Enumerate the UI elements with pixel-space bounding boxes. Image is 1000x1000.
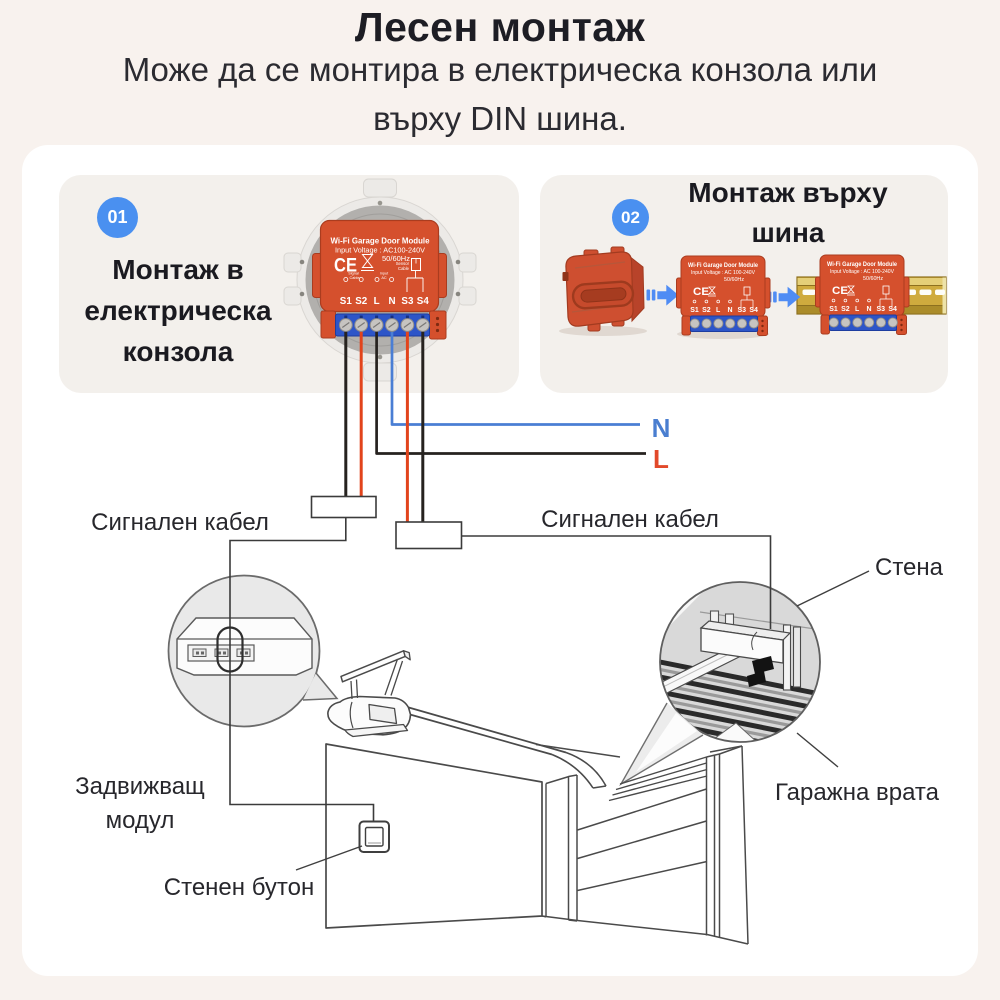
svg-text:S3: S3 xyxy=(401,296,414,307)
svg-text:Wi-Fi Garage Door Module: Wi-Fi Garage Door Module xyxy=(331,236,430,246)
svg-text:S3: S3 xyxy=(738,307,747,314)
svg-text:S4: S4 xyxy=(749,307,758,314)
svg-text:S2: S2 xyxy=(355,296,368,307)
svg-text:S1: S1 xyxy=(690,307,699,314)
svg-text:N: N xyxy=(727,307,732,314)
svg-text:Input Voltage : AC 100-240V: Input Voltage : AC 100-240V xyxy=(691,270,756,276)
svg-text:CE: CE xyxy=(693,286,709,298)
svg-text:L: L xyxy=(374,296,380,307)
svg-text:Cable: Cable xyxy=(398,266,410,271)
svg-text:Signal: Signal xyxy=(348,272,359,276)
svg-text:Wi-Fi Garage Door Module: Wi-Fi Garage Door Module xyxy=(688,263,759,269)
svg-text:Input: Input xyxy=(380,272,389,276)
svg-text:S2: S2 xyxy=(702,307,711,314)
svg-text:50/60Hz: 50/60Hz xyxy=(724,277,745,283)
svg-text:N: N xyxy=(388,296,395,307)
svg-text:AC: AC xyxy=(381,276,387,280)
svg-text:S1: S1 xyxy=(340,296,353,307)
svg-text:S4: S4 xyxy=(417,296,430,307)
svg-text:Cable: Cable xyxy=(350,276,360,280)
svg-text:Input Voltage : AC100-240V: Input Voltage : AC100-240V xyxy=(335,246,425,255)
svg-text:L: L xyxy=(716,307,721,314)
